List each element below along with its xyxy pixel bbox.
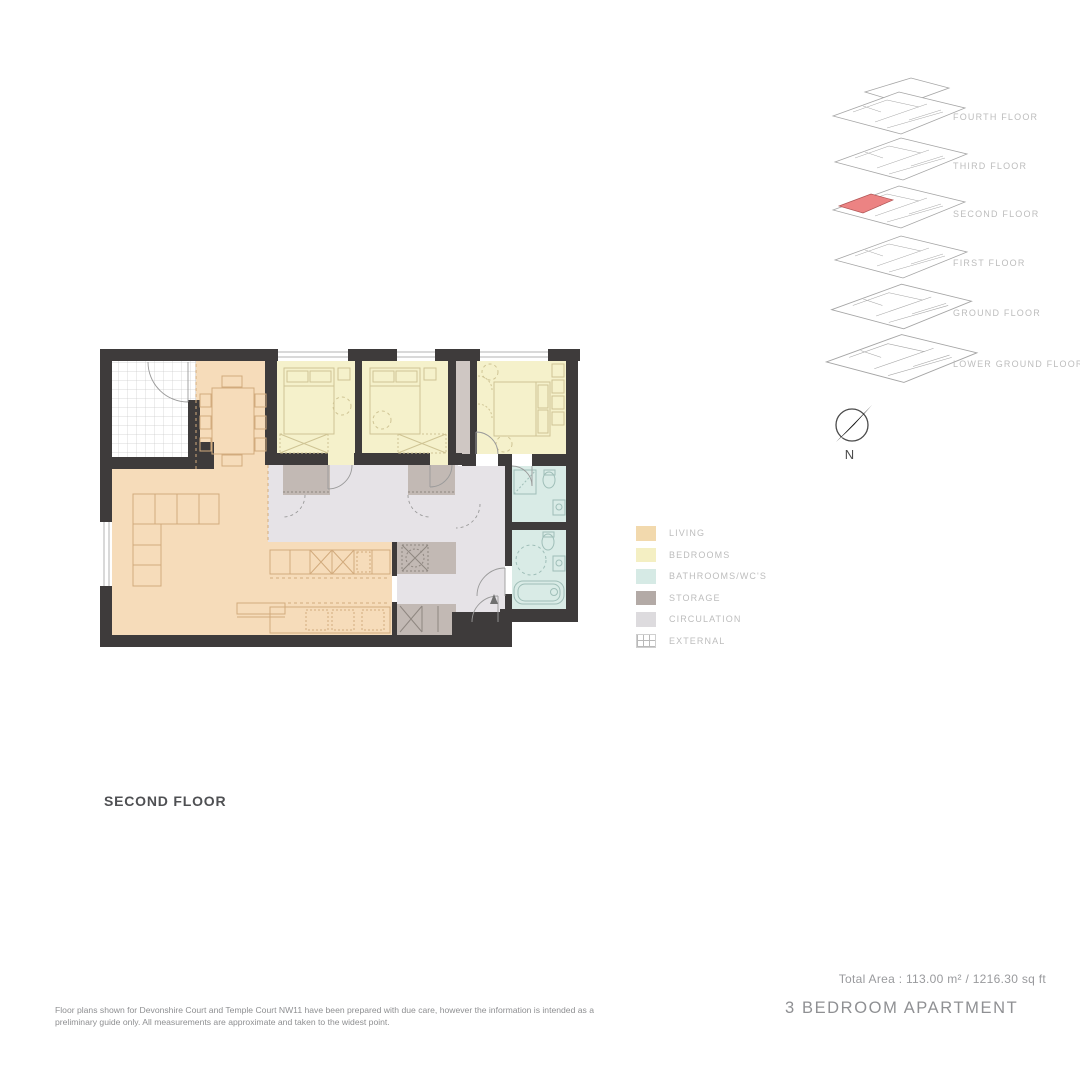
stack-label-fourth: FOURTH FLOOR bbox=[953, 112, 1038, 122]
legend-item-bathrooms: BATHROOMS/WC'S bbox=[636, 569, 767, 584]
apartment-type-text: 3 BEDROOM APARTMENT bbox=[785, 999, 1018, 1018]
north-arrow-icon bbox=[828, 402, 876, 448]
legend: LIVING BEDROOMS BATHROOMS/WC'S STORAGE C… bbox=[636, 526, 767, 648]
legend-swatch-circulation bbox=[636, 612, 656, 627]
kitchen bbox=[268, 542, 392, 635]
storage-3 bbox=[397, 604, 456, 635]
legend-label: BEDROOMS bbox=[669, 550, 730, 560]
storage-2 bbox=[408, 465, 455, 495]
floorplan-page: FOURTH FLOOR THIRD FLOOR SECOND FLOOR FI… bbox=[0, 0, 1080, 1080]
legend-swatch-bathrooms bbox=[636, 569, 656, 584]
storage-1 bbox=[283, 465, 330, 495]
legend-label: LIVING bbox=[669, 528, 705, 538]
legend-item-circulation: CIRCULATION bbox=[636, 612, 767, 627]
bedroom-3 bbox=[477, 361, 566, 454]
legend-swatch-external bbox=[636, 634, 656, 649]
legend-label: STORAGE bbox=[669, 593, 721, 603]
legend-label: CIRCULATION bbox=[669, 614, 741, 624]
legend-swatch-bedrooms bbox=[636, 548, 656, 563]
stack-label-ground: GROUND FLOOR bbox=[953, 308, 1041, 318]
legend-item-storage: STORAGE bbox=[636, 591, 767, 606]
total-area-text: Total Area : 113.00 m² / 1216.30 sq ft bbox=[760, 972, 1046, 986]
stack-label-third: THIRD FLOOR bbox=[953, 161, 1027, 171]
legend-item-bedrooms: BEDROOMS bbox=[636, 548, 767, 563]
legend-label: EXTERNAL bbox=[669, 636, 725, 646]
bedroom-2 bbox=[362, 361, 448, 465]
main-bathroom bbox=[512, 530, 566, 609]
page-title: SECOND FLOOR bbox=[104, 793, 226, 809]
legend-item-external: EXTERNAL bbox=[636, 634, 767, 649]
floor-plan-drawing bbox=[100, 344, 580, 650]
legend-swatch-living bbox=[636, 526, 656, 541]
stack-label-first: FIRST FLOOR bbox=[953, 258, 1026, 268]
stack-label-lower-ground: LOWER GROUND FLOOR bbox=[953, 359, 1080, 369]
stack-label-second: SECOND FLOOR bbox=[953, 209, 1039, 219]
disclaimer-text: Floor plans shown for Devonshire Court a… bbox=[55, 1005, 603, 1028]
legend-label: BATHROOMS/WC'S bbox=[669, 571, 767, 581]
legend-swatch-storage bbox=[636, 591, 656, 606]
north-label: N bbox=[828, 447, 872, 462]
legend-item-living: LIVING bbox=[636, 526, 767, 541]
